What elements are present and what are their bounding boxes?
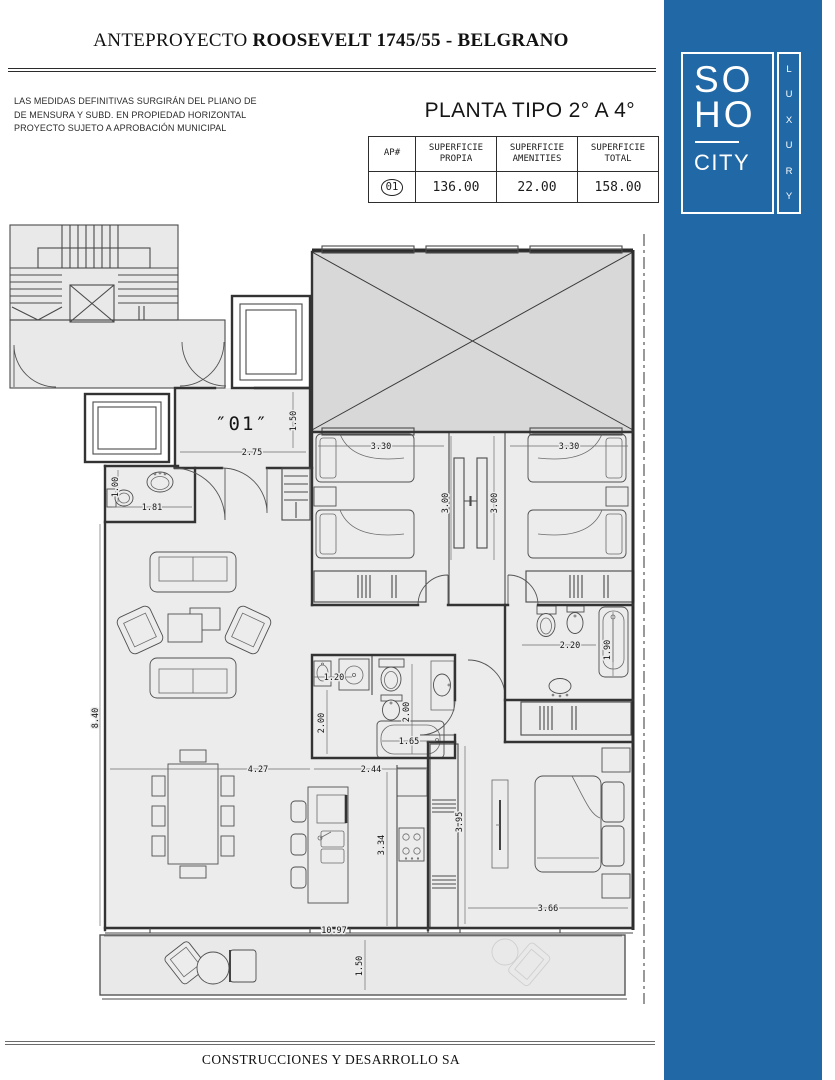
col-header-ap: AP# <box>369 137 416 172</box>
surface-table: AP# SUPERFICIE PROPIA SUPERFICIE AMENITI… <box>368 136 659 203</box>
ap-number-badge: 01 <box>381 179 404 196</box>
nightstand <box>606 487 628 506</box>
elevator-1 <box>232 296 310 388</box>
sofa <box>150 658 236 698</box>
bed <box>316 510 414 558</box>
dim-kitchen-width: 2.44 <box>361 765 381 775</box>
dim-bedroom3-depth: 3.00 <box>490 493 500 513</box>
dim-bedroom3-width: 3.30 <box>559 442 579 452</box>
logo-line-so: SO <box>694 62 772 97</box>
stove <box>399 828 424 861</box>
title-prefix: ANTEPROYECTO <box>93 30 252 51</box>
header-rule <box>8 68 656 72</box>
elevator-2 <box>85 394 169 462</box>
dim-master-bedroom-depth: 3.95 <box>455 812 465 832</box>
logo-line-city: CITY <box>694 150 772 176</box>
dim-entry-depth: 1.50 <box>289 411 299 431</box>
dim-dining-width: 4.27 <box>248 765 268 775</box>
soho-city-logo: SO HO CITY LUXURY <box>681 52 801 214</box>
bed <box>528 510 626 558</box>
logo-main-box: SO HO CITY <box>681 52 774 214</box>
cell-superficie-total: 158.00 <box>578 172 659 203</box>
sink <box>147 472 173 492</box>
dim-bedroom2-depth: 3.00 <box>441 493 451 513</box>
balcony-table <box>197 952 229 984</box>
nightstand <box>314 487 336 506</box>
title-main: ROOSEVELT 1745/55 - BELGRANO <box>253 30 569 51</box>
nightstand <box>602 748 630 772</box>
page-title: ANTEPROYECTO ROOSEVELT 1745/55 - BELGRAN… <box>0 30 662 52</box>
dim-bedroom2-width: 3.30 <box>371 442 391 452</box>
dim-living-length: 8.40 <box>91 708 101 728</box>
dim-balcony-length: 10.97 <box>321 926 347 936</box>
dim-bath-depth: 2.00 <box>402 702 412 722</box>
cell-ap: 01 <box>369 172 416 203</box>
bar-stools <box>291 801 306 888</box>
bed <box>316 434 414 482</box>
page: ″01″ <box>0 0 835 1080</box>
disclaimer-note: LAS MEDIDAS DEFINITIVAS SURGIRÁN DEL PLI… <box>14 95 257 136</box>
unit-number-label: ″01″ <box>215 413 269 435</box>
logo-line-ho: HO <box>694 97 772 132</box>
toilet <box>537 606 556 637</box>
dim-entry-width: 2.75 <box>242 448 262 458</box>
col-header-superficie-amenities: SUPERFICIE AMENITIES <box>497 137 578 172</box>
footer-rule <box>5 1041 655 1045</box>
dim-laundry-width: 1.20 <box>324 673 344 683</box>
surface-table-row: 01 136.00 22.00 158.00 <box>369 172 659 203</box>
sofa <box>150 552 236 592</box>
dim-toilette-width: 1.81 <box>142 503 162 513</box>
dining-table <box>168 764 218 864</box>
fridge <box>397 768 427 796</box>
logo-divider <box>695 141 739 143</box>
plan-title: PLANTA TIPO 2° A 4° <box>350 99 635 123</box>
dim-balcony-depth: 1.50 <box>355 956 365 976</box>
dim-master-bath-width: 2.20 <box>560 641 580 651</box>
nightstand <box>602 874 630 898</box>
dim-master-bath-depth: 1.90 <box>603 640 613 660</box>
cell-superficie-propia: 136.00 <box>416 172 497 203</box>
col-header-superficie-total: SUPERFICIE TOTAL <box>578 137 659 172</box>
dim-laundry-depth: 2.00 <box>317 713 327 733</box>
surface-table-header-row: AP# SUPERFICIE PROPIA SUPERFICIE AMENITI… <box>369 137 659 172</box>
dim-kitchen-depth: 3.34 <box>377 835 387 855</box>
footer-company: CONSTRUCCIONES Y DESARROLLO SA <box>0 1052 662 1068</box>
dim-toilette-depth: 1.00 <box>111 477 121 497</box>
dim-bathtub-length: 1.65 <box>399 737 419 747</box>
bidet <box>567 606 584 634</box>
brand-sidebar: SO HO CITY LUXURY <box>664 0 822 1080</box>
dim-master-bedroom-width: 3.66 <box>538 904 558 914</box>
balcony-chair <box>230 950 256 982</box>
coffee-table <box>168 614 202 642</box>
col-header-superficie-propia: SUPERFICIE PROPIA <box>416 137 497 172</box>
patio-shaft <box>312 246 633 432</box>
kitchen-island <box>308 787 348 903</box>
logo-luxury-box: LUXURY <box>777 52 801 214</box>
cell-superficie-amenities: 22.00 <box>497 172 578 203</box>
